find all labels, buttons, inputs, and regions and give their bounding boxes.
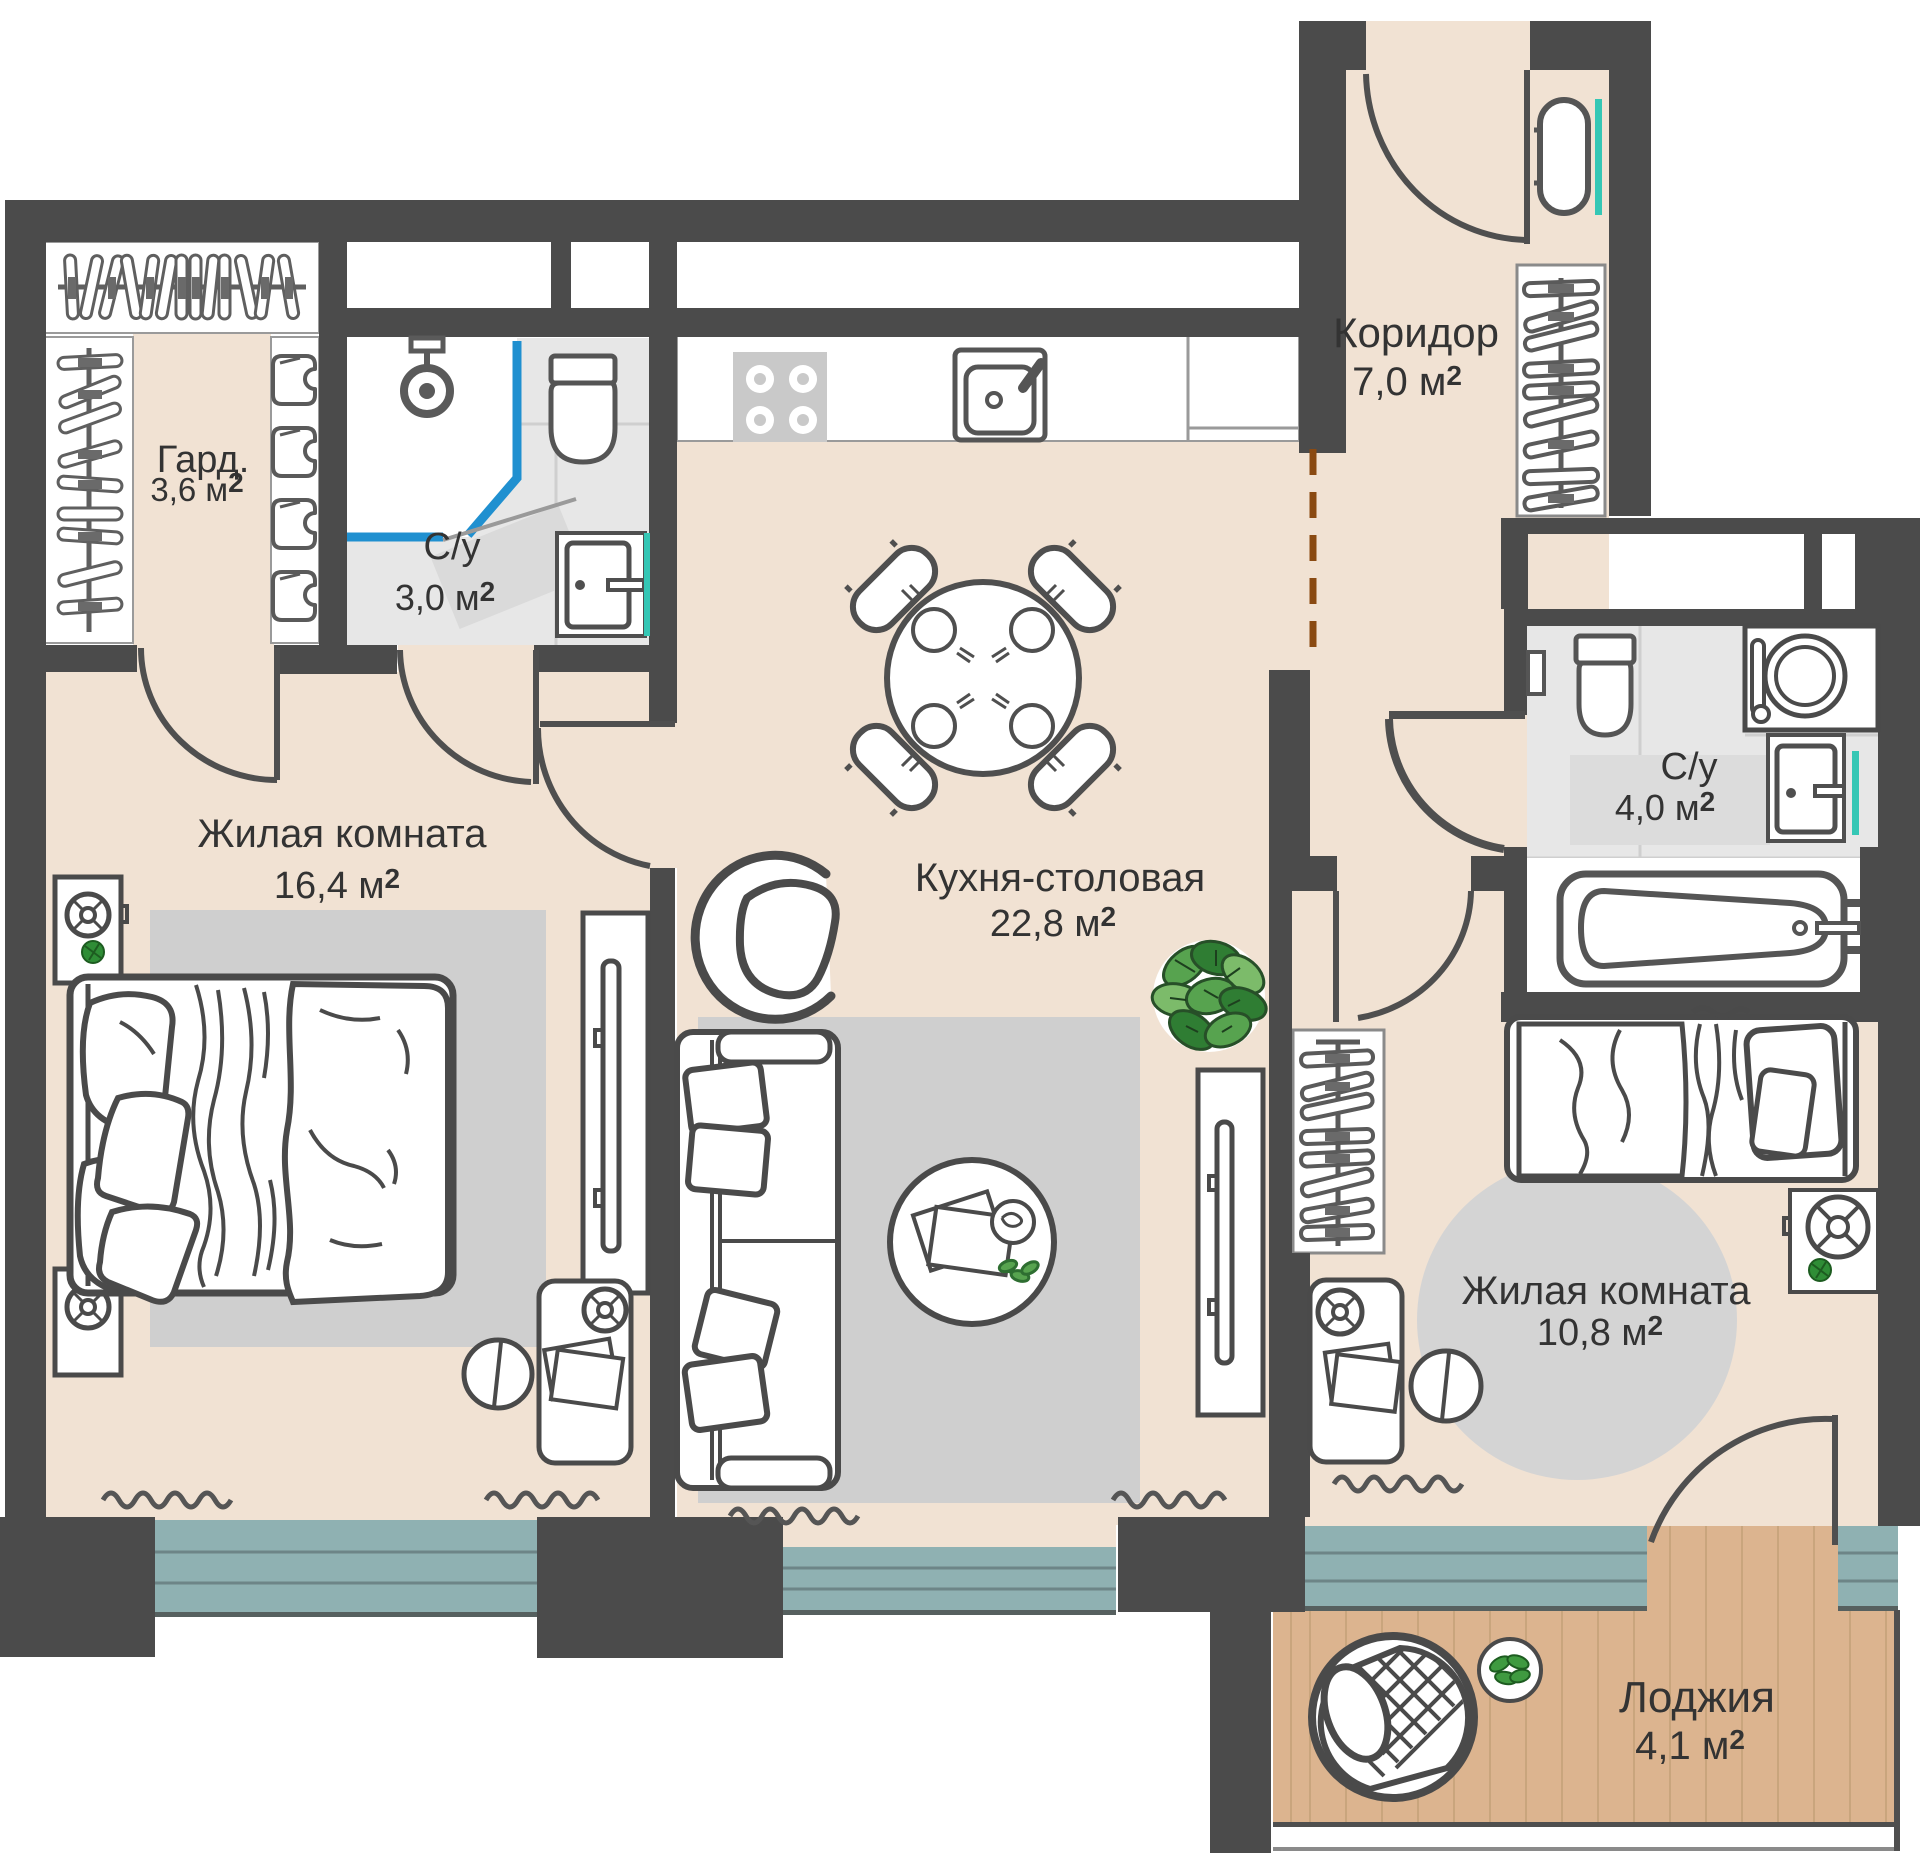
- svg-text:С/у: С/у: [424, 526, 481, 568]
- svg-text:7,0 м2: 7,0 м2: [1352, 360, 1462, 404]
- svg-text:Кухня-столовая: Кухня-столовая: [915, 856, 1205, 900]
- svg-text:Коридор: Коридор: [1333, 309, 1499, 356]
- svg-text:22,8 м2: 22,8 м2: [990, 901, 1116, 945]
- svg-text:Лоджия: Лоджия: [1619, 1673, 1775, 1722]
- svg-text:4,1 м2: 4,1 м2: [1635, 1724, 1745, 1768]
- svg-text:Жилая комната: Жилая комната: [1462, 1269, 1752, 1313]
- svg-text:16,4 м2: 16,4 м2: [274, 863, 400, 907]
- svg-text:10,8 м2: 10,8 м2: [1537, 1310, 1663, 1354]
- svg-text:Жилая комната: Жилая комната: [198, 812, 488, 856]
- svg-text:С/у: С/у: [1661, 746, 1718, 788]
